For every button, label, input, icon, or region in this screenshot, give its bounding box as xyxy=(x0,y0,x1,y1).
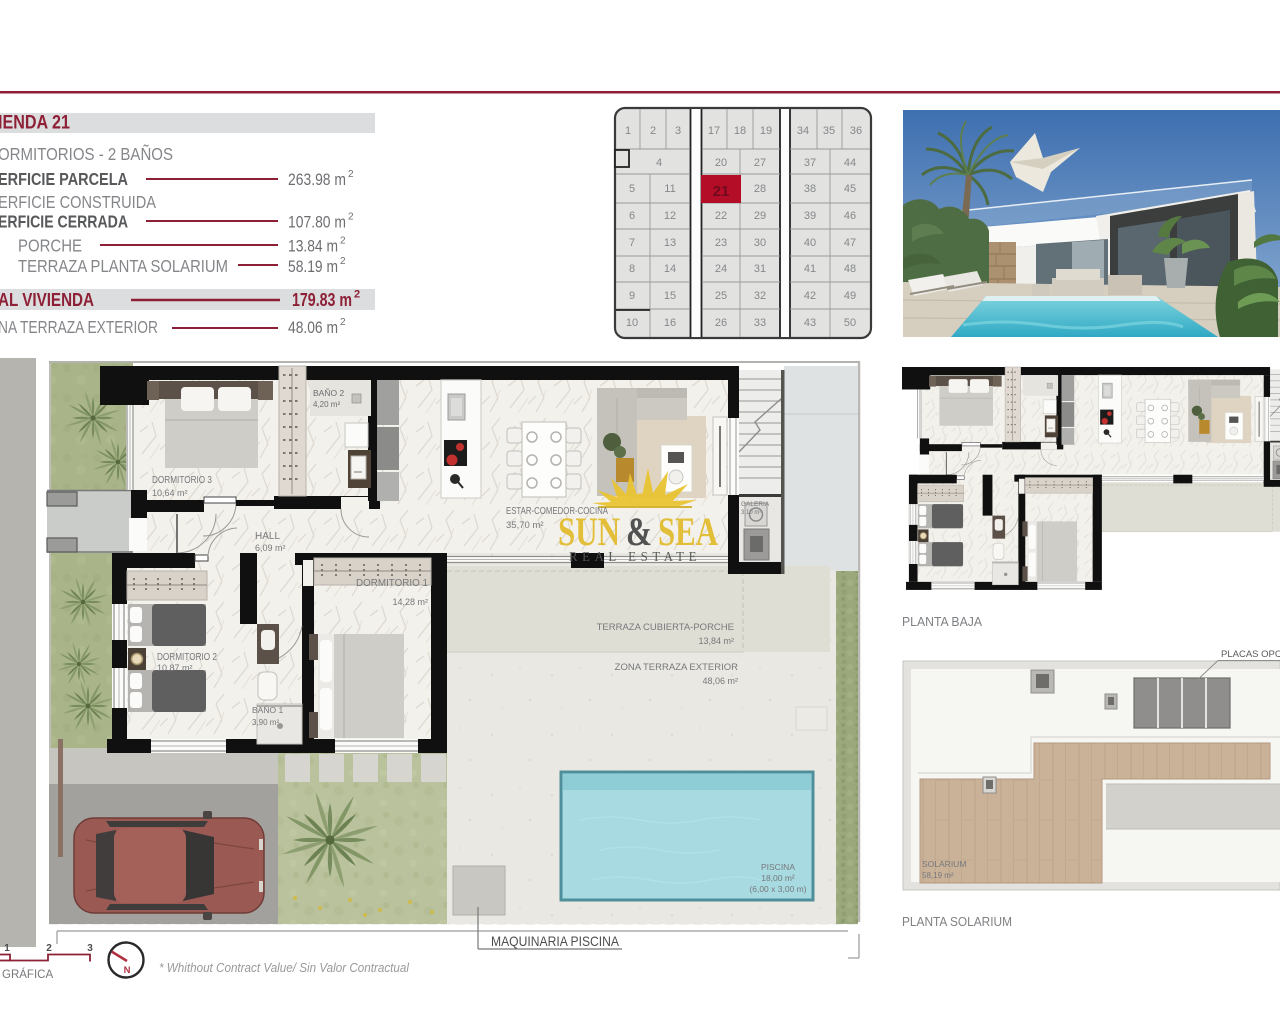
svg-text:36: 36 xyxy=(850,125,862,137)
svg-text:2: 2 xyxy=(340,256,346,267)
svg-text:2: 2 xyxy=(348,212,354,223)
svg-text:10,64 m²: 10,64 m² xyxy=(152,488,188,498)
svg-text:41: 41 xyxy=(804,263,816,275)
svg-text:25: 25 xyxy=(715,290,727,302)
svg-text:45: 45 xyxy=(844,183,856,195)
svg-text:3: 3 xyxy=(675,125,681,137)
svg-text:8: 8 xyxy=(629,263,635,275)
svg-text:47: 47 xyxy=(844,237,856,249)
svg-text:24: 24 xyxy=(715,263,727,275)
svg-text:5: 5 xyxy=(629,183,635,195)
svg-text:9: 9 xyxy=(629,290,635,302)
svg-text:22: 22 xyxy=(715,210,727,222)
svg-text:27: 27 xyxy=(754,157,766,169)
svg-text:33: 33 xyxy=(754,317,766,329)
svg-text:31: 31 xyxy=(754,263,766,275)
svg-text:28: 28 xyxy=(754,183,766,195)
svg-text:30: 30 xyxy=(754,237,766,249)
svg-text:263.98 m: 263.98 m xyxy=(288,170,346,189)
svg-text:13: 13 xyxy=(664,237,676,249)
svg-text:ZONA TERRAZA EXTERIOR: ZONA TERRAZA EXTERIOR xyxy=(615,662,738,673)
svg-text:42: 42 xyxy=(804,290,816,302)
svg-text:2: 2 xyxy=(340,236,346,247)
svg-text:1: 1 xyxy=(625,125,631,137)
svg-text:6: 6 xyxy=(629,210,635,222)
svg-text:PISCINA: PISCINA xyxy=(761,862,795,872)
svg-text:58.19 m: 58.19 m xyxy=(288,257,338,276)
svg-text:2: 2 xyxy=(46,943,52,954)
svg-text:ERFICIE PARCELA: ERFICIE PARCELA xyxy=(0,169,128,189)
svg-text:23: 23 xyxy=(715,237,727,249)
svg-text:PLANTA SOLARIUM: PLANTA SOLARIUM xyxy=(902,914,1012,929)
svg-text:10: 10 xyxy=(626,317,638,329)
svg-text:44: 44 xyxy=(844,157,856,169)
svg-text:29: 29 xyxy=(754,210,766,222)
svg-text:ERFICIE CERRADA: ERFICIE CERRADA xyxy=(0,212,128,232)
svg-text:39: 39 xyxy=(804,210,816,222)
svg-text:18: 18 xyxy=(734,125,746,137)
svg-text:GALERIA: GALERIA xyxy=(741,501,770,508)
svg-text:3: 3 xyxy=(87,943,93,954)
svg-text:48: 48 xyxy=(844,263,856,275)
svg-text:58,19 m²: 58,19 m² xyxy=(922,871,954,880)
svg-text:107.80 m: 107.80 m xyxy=(288,213,346,232)
svg-text:12: 12 xyxy=(664,210,676,222)
svg-text:14: 14 xyxy=(664,263,676,275)
svg-text:11: 11 xyxy=(664,183,675,195)
svg-text:TERRAZA CUBIERTA-PORCHE: TERRAZA CUBIERTA-PORCHE xyxy=(597,622,734,633)
svg-text:32: 32 xyxy=(754,290,766,302)
svg-text:40: 40 xyxy=(804,237,816,249)
svg-text:26: 26 xyxy=(715,317,727,329)
svg-text:15: 15 xyxy=(664,290,676,302)
svg-text:50: 50 xyxy=(844,317,856,329)
svg-text:ORMITORIOS - 2 BAÑOS: ORMITORIOS - 2 BAÑOS xyxy=(0,143,173,164)
svg-text:PLANTA BAJA: PLANTA BAJA xyxy=(902,614,982,629)
svg-text:37: 37 xyxy=(804,157,816,169)
svg-text:35,70 m²: 35,70 m² xyxy=(506,520,544,531)
svg-text:* Whithout Contract Value/ Si: * Whithout Contract Value/ Sin Valor Con… xyxy=(159,961,410,975)
svg-text:18,00 m²: 18,00 m² xyxy=(761,873,795,883)
svg-text:17: 17 xyxy=(708,125,720,137)
svg-text:SOLARIUM: SOLARIUM xyxy=(922,859,966,869)
svg-text:13.84 m: 13.84 m xyxy=(288,237,338,256)
svg-text:2: 2 xyxy=(348,169,354,180)
svg-text:2: 2 xyxy=(340,317,346,328)
svg-text:2: 2 xyxy=(354,289,360,301)
svg-text:N: N xyxy=(124,965,131,976)
svg-text:7: 7 xyxy=(629,237,635,249)
svg-text:48.06 m: 48.06 m xyxy=(288,318,338,337)
svg-text:&: & xyxy=(626,509,652,554)
svg-text:REAL ESTATE: REAL ESTATE xyxy=(569,550,701,565)
svg-text:46: 46 xyxy=(844,210,856,222)
svg-text:3,90 m²: 3,90 m² xyxy=(252,718,279,727)
svg-text:HALL: HALL xyxy=(255,531,280,542)
svg-text:3,10 m²: 3,10 m² xyxy=(741,510,761,516)
svg-text:35: 35 xyxy=(823,125,835,137)
svg-text:1: 1 xyxy=(4,943,10,954)
svg-text:179.83 m: 179.83 m xyxy=(292,290,352,310)
svg-text:MAQUINARIA PISCINA: MAQUINARIA PISCINA xyxy=(491,933,620,949)
svg-text:PORCHE: PORCHE xyxy=(18,236,82,256)
svg-text:ERFICIE CONSTRUIDA: ERFICIE CONSTRUIDA xyxy=(0,192,156,212)
svg-text:DORMITORIO 1: DORMITORIO 1 xyxy=(356,578,428,589)
svg-text:4: 4 xyxy=(656,157,662,169)
svg-text:48,06 m²: 48,06 m² xyxy=(702,676,738,686)
svg-text:BAÑO 1: BAÑO 1 xyxy=(252,705,283,715)
svg-text:TERRAZA PLANTA SOLARIUM: TERRAZA PLANTA SOLARIUM xyxy=(18,256,228,276)
svg-text:6,09 m²: 6,09 m² xyxy=(255,543,286,553)
svg-text:34: 34 xyxy=(797,125,809,137)
svg-text:43: 43 xyxy=(804,317,816,329)
svg-text:19: 19 xyxy=(760,125,772,137)
svg-text:13,84 m²: 13,84 m² xyxy=(698,636,734,646)
svg-text:49: 49 xyxy=(844,290,856,302)
svg-text:38: 38 xyxy=(804,183,816,195)
svg-text:21: 21 xyxy=(713,183,730,200)
svg-text:2: 2 xyxy=(650,125,656,137)
svg-text:GRÁFICA: GRÁFICA xyxy=(2,968,53,981)
svg-text:BAÑO 2: BAÑO 2 xyxy=(313,388,344,398)
svg-text:14,28 m²: 14,28 m² xyxy=(392,597,428,607)
svg-text:AL VIVIENDA: AL VIVIENDA xyxy=(0,290,94,310)
svg-text:16: 16 xyxy=(664,317,676,329)
svg-text:(6,00 x 3,00 m): (6,00 x 3,00 m) xyxy=(749,884,806,894)
svg-text:SEA: SEA xyxy=(658,509,718,554)
svg-text:4,20 m²: 4,20 m² xyxy=(313,400,340,409)
svg-text:PLACAS OPCIO: PLACAS OPCIO xyxy=(1221,649,1280,660)
svg-text:DORMITORIO 2: DORMITORIO 2 xyxy=(157,652,217,663)
svg-text:10,87 m²: 10,87 m² xyxy=(157,663,193,673)
svg-text:20: 20 xyxy=(715,157,727,169)
svg-text:NA TERRAZA EXTERIOR: NA TERRAZA EXTERIOR xyxy=(0,317,158,337)
svg-text:DORMITORIO 3: DORMITORIO 3 xyxy=(152,475,212,486)
svg-text:ESTAR-COMEDOR-COCINA: ESTAR-COMEDOR-COCINA xyxy=(506,505,608,517)
svg-text:IENDA 21: IENDA 21 xyxy=(0,113,70,134)
